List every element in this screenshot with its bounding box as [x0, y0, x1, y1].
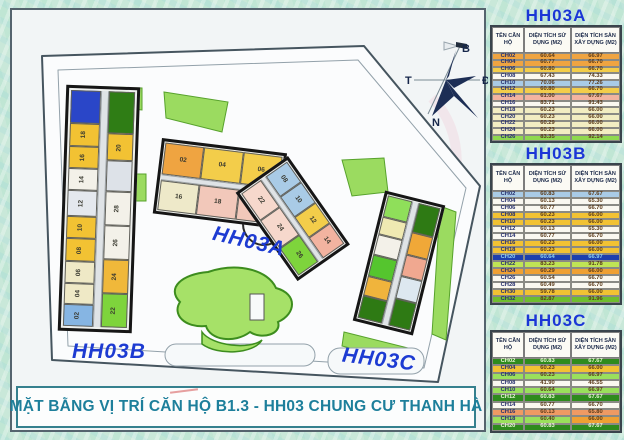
- area-value-cell: 83.23: [524, 261, 571, 268]
- unit-number: 04: [76, 290, 83, 297]
- apartment-name-cell: CH08: [492, 212, 524, 219]
- apartment-unit: 08: [65, 238, 96, 262]
- compass-north-label: B: [462, 43, 470, 55]
- apartment-unit: 02: [63, 304, 94, 327]
- apartment-unit: 14: [68, 168, 99, 191]
- unit-number: 22: [111, 307, 118, 314]
- table-row: CH0660.7766.70: [492, 205, 620, 212]
- area-table-hh03a: HH03A TÊN CĂN HỘDIỆN TÍCH SỬ DỤNG (M2)DI…: [490, 6, 622, 143]
- area-value-cell: 65.30: [571, 226, 620, 233]
- area-value-cell: 60.64: [524, 254, 571, 261]
- site-plan-page: { "title_bar": { "text": "MẶT BẰNG VỊ TR…: [0, 0, 624, 440]
- apartment-unit: 10: [66, 216, 97, 240]
- table-row: CH2460.2966.00: [492, 268, 620, 275]
- unit-number: 18: [214, 199, 222, 206]
- area-value-cell: 60.83: [524, 394, 571, 401]
- area-value-cell: 60.77: [524, 233, 571, 240]
- unit-number: 10: [78, 224, 85, 231]
- table-row: CH3282.8791.96: [492, 296, 620, 303]
- apartment-name-cell: CH28: [492, 282, 524, 289]
- apartment-name-cell: CH26: [492, 275, 524, 282]
- area-value-cell: 65.30: [571, 198, 620, 205]
- apartment-name-cell: CH16: [492, 240, 524, 247]
- table-row: CH1260.8367.67: [492, 394, 620, 401]
- column-header: TÊN CĂN HỘ: [492, 332, 524, 358]
- apartment-unit: 04: [64, 283, 95, 306]
- unit-number: 16: [80, 154, 87, 161]
- unit-number: 08: [77, 246, 84, 253]
- area-value-cell: 92.14: [571, 135, 620, 142]
- table-row: CH2660.5466.70: [492, 275, 620, 282]
- compass-east-label: Đ: [482, 75, 488, 87]
- apartment-name-cell: CH18: [492, 247, 524, 254]
- title-bar: MẶT BẰNG VỊ TRÍ CĂN HỘ B1.3 - HH03 CHUNG…: [16, 386, 476, 428]
- area-value-cell: 66.00: [571, 240, 620, 247]
- table-row: CH0860.2366.00: [492, 212, 620, 219]
- column-header: DIỆN TÍCH SÀN XÂY DỰNG (M2): [571, 165, 620, 191]
- table-body-hh03c: TÊN CĂN HỘDIỆN TÍCH SỬ DỤNG (M2)DIỆN TÍC…: [490, 330, 622, 433]
- apartment-name-cell: CH20: [492, 254, 524, 261]
- area-value-cell: 91.96: [571, 296, 620, 303]
- table-row: CH2060.8367.67: [492, 424, 620, 431]
- area-value-cell: 60.23: [524, 247, 571, 254]
- area-value-cell: 66.97: [571, 373, 620, 380]
- table-row: CH1460.7766.70: [492, 233, 620, 240]
- column-header: DIỆN TÍCH SỬ DỤNG (M2): [524, 332, 571, 358]
- unit-number: 06: [76, 269, 83, 276]
- area-value-cell: 66.70: [571, 282, 620, 289]
- apartment-name-cell: CH02: [492, 191, 524, 198]
- compass-south-label: N: [432, 117, 440, 129]
- label-hh03b: HH03B: [72, 340, 146, 364]
- apartment-name-cell: CH14: [492, 402, 524, 409]
- table-row: CH1260.1365.30: [492, 226, 620, 233]
- pond-deck: [250, 294, 264, 320]
- unit-number: 18: [81, 131, 88, 138]
- area-value-cell: 60.77: [524, 402, 571, 409]
- table-body-hh03a: TÊN CĂN HỘDIỆN TÍCH SỬ DỤNG (M2)DIỆN TÍC…: [490, 25, 622, 143]
- apartment-name-cell: CH12: [492, 394, 524, 401]
- unit-number: 12: [307, 215, 316, 225]
- area-value-cell: 59.78: [524, 289, 571, 296]
- table-body-hh03b: TÊN CĂN HỘDIỆN TÍCH SỬ DỤNG (M2)DIỆN TÍC…: [490, 163, 622, 305]
- column-header: TÊN CĂN HỘ: [492, 27, 524, 53]
- unit-number: 26: [294, 250, 303, 260]
- apartment-name-cell: CH24: [492, 268, 524, 275]
- unit-number: 08: [279, 174, 288, 184]
- apartment-unit: [70, 90, 101, 124]
- table-row: CH2683.3592.14: [492, 135, 620, 142]
- area-value-cell: 66.00: [571, 247, 620, 254]
- unit-number: 02: [179, 157, 187, 164]
- unit-number: 04: [218, 162, 226, 169]
- apartment-unit: 24: [102, 259, 129, 294]
- area-value-cell: 67.67: [571, 191, 620, 198]
- table-row: CH1460.7766.70: [492, 402, 620, 409]
- area-value-cell: 66.70: [571, 233, 620, 240]
- apartment-name-cell: CH32: [492, 296, 524, 303]
- area-value-cell: 60.77: [524, 205, 571, 212]
- area-value-cell: 66.97: [571, 254, 620, 261]
- apartment-unit: 22: [101, 293, 128, 328]
- apartment-name-cell: CH26: [492, 135, 524, 142]
- area-value-cell: 66.70: [571, 402, 620, 409]
- table-title-hh03a: HH03A: [490, 6, 622, 25]
- unit-number: 20: [117, 144, 124, 151]
- table-row: CH2860.4966.70: [492, 282, 620, 289]
- apartment-name-cell: CH10: [492, 219, 524, 226]
- area-value-cell: 60.83: [524, 191, 571, 198]
- unit-number: 12: [79, 200, 86, 207]
- column-header: TÊN CĂN HỘ: [492, 165, 524, 191]
- area-value-cell: 66.00: [571, 268, 620, 275]
- area-value-cell: 82.87: [524, 296, 571, 303]
- area-table-hh03b: HH03B TÊN CĂN HỘDIỆN TÍCH SỬ DỤNG (M2)DI…: [490, 144, 622, 305]
- table-row: CH2060.6466.97: [492, 254, 620, 261]
- apartment-unit: 26: [103, 225, 130, 260]
- apartment-name-cell: CH14: [492, 233, 524, 240]
- area-value-cell: 60.23: [524, 212, 571, 219]
- apartment-unit: 12: [67, 190, 98, 217]
- unit-number: 28: [115, 205, 122, 212]
- unit-number: 26: [113, 239, 120, 246]
- apartment-unit: [108, 91, 135, 134]
- area-value-cell: 60.23: [524, 219, 571, 226]
- table-header-row: TÊN CĂN HỘDIỆN TÍCH SỬ DỤNG (M2)DIỆN TÍC…: [492, 332, 620, 358]
- area-value-cell: 66.70: [571, 275, 620, 282]
- apartment-name-cell: CH04: [492, 198, 524, 205]
- area-value-cell: 60.83: [524, 424, 571, 431]
- table-header-row: TÊN CĂN HỘDIỆN TÍCH SỬ DỤNG (M2)DIỆN TÍC…: [492, 27, 620, 53]
- apartment-name-cell: CH06: [492, 205, 524, 212]
- area-value-cell: 67.67: [571, 424, 620, 431]
- table-row: CH3059.7866.00: [492, 289, 620, 296]
- unit-number: 02: [75, 312, 82, 319]
- column-header: DIỆN TÍCH SÀN XÂY DỰNG (M2): [571, 332, 620, 358]
- unit-number: 16: [175, 194, 183, 201]
- apartment-name-cell: CH30: [492, 289, 524, 296]
- apartment-unit: [106, 161, 133, 192]
- area-table-hh03c: HH03C TÊN CĂN HỘDIỆN TÍCH SỬ DỤNG (M2)DI…: [490, 311, 622, 433]
- area-value-cell: 60.23: [524, 373, 571, 380]
- unit-number: 22: [256, 196, 265, 206]
- unit-number: 24: [112, 273, 119, 280]
- apartment-unit: 02: [162, 142, 205, 179]
- area-value-cell: 60.13: [524, 226, 571, 233]
- area-value-cell: 60.29: [524, 268, 571, 275]
- site-plan-panel: B Đ T N 181614121008060402 2028262422 02…: [10, 8, 486, 432]
- unit-number: 14: [322, 236, 331, 246]
- table-row: CH0460.1365.30: [492, 198, 620, 205]
- table-title-hh03c: HH03C: [490, 311, 622, 330]
- table-header-row: TÊN CĂN HỘDIỆN TÍCH SỬ DỤNG (M2)DIỆN TÍC…: [492, 165, 620, 191]
- table-row: CH0660.2366.97: [492, 373, 620, 380]
- area-value-cell: 67.67: [571, 394, 620, 401]
- apartment-name-cell: CH12: [492, 226, 524, 233]
- area-value-cell: 60.13: [524, 198, 571, 205]
- apartment-unit: 16: [68, 146, 99, 170]
- table-row: CH0260.8367.67: [492, 191, 620, 198]
- area-value-cell: 91.78: [571, 261, 620, 268]
- table-row: CH1060.2366.00: [492, 219, 620, 226]
- apartment-name-cell: CH22: [492, 261, 524, 268]
- area-value-cell: 66.00: [571, 219, 620, 226]
- table-row: CH1660.2366.00: [492, 240, 620, 247]
- area-value-cell: 83.35: [524, 135, 571, 142]
- column-header: DIỆN TÍCH SỬ DỤNG (M2): [524, 27, 571, 53]
- apartment-unit: 18: [69, 123, 100, 147]
- apartment-unit: 28: [104, 191, 131, 226]
- area-value-cell: 66.00: [571, 289, 620, 296]
- apartment-unit: 16: [157, 181, 200, 215]
- table-row: CH1860.2366.00: [492, 247, 620, 254]
- unit-number: 10: [293, 195, 302, 205]
- unit-number: 24: [275, 223, 284, 233]
- table-row: CH2283.2391.78: [492, 261, 620, 268]
- area-value-cell: 60.54: [524, 275, 571, 282]
- area-value-cell: 60.23: [524, 240, 571, 247]
- area-value-cell: 66.70: [571, 205, 620, 212]
- compass-west-label: T: [405, 75, 412, 87]
- table-title-hh03b: HH03B: [490, 144, 622, 163]
- apartment-unit: 04: [201, 147, 244, 184]
- area-value-cell: 66.00: [571, 212, 620, 219]
- plan-title: MẶT BẰNG VỊ TRÍ CĂN HỘ B1.3 - HH03 CHUNG…: [10, 398, 483, 416]
- unit-number: 14: [80, 176, 87, 183]
- area-value-cell: 60.49: [524, 282, 571, 289]
- apartment-unit: 20: [107, 134, 134, 162]
- column-header: DIỆN TÍCH SỬ DỤNG (M2): [524, 165, 571, 191]
- apartment-unit: 18: [196, 185, 239, 219]
- column-header: DIỆN TÍCH SÀN XÂY DỰNG (M2): [571, 27, 620, 53]
- apartment-unit: 06: [64, 261, 95, 284]
- apartment-name-cell: CH06: [492, 373, 524, 380]
- apartment-name-cell: CH20: [492, 424, 524, 431]
- building-hh03b: 181614121008060402 2028262422: [58, 85, 141, 333]
